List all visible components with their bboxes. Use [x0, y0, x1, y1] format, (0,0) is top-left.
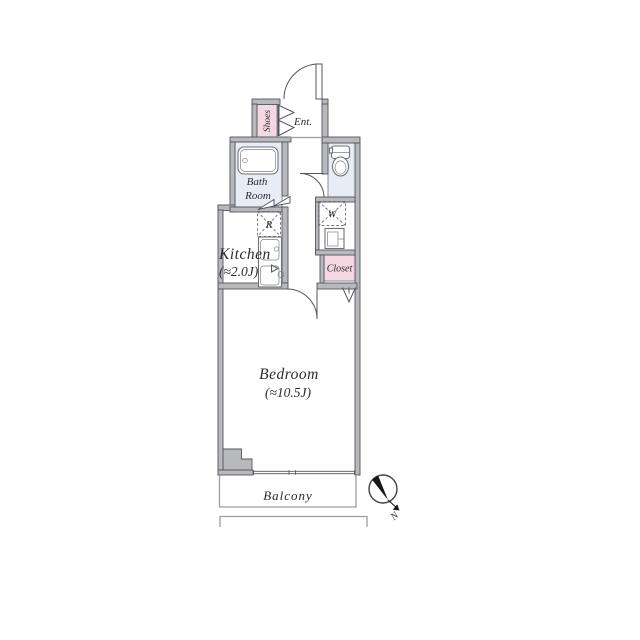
shoes-bifold-door	[278, 105, 294, 136]
shoes-door-panel-top	[279, 106, 294, 120]
toilet-door	[300, 174, 324, 198]
bathtub	[238, 147, 278, 174]
refrigerator-space: R	[258, 212, 281, 237]
wall-bath-left	[230, 142, 235, 212]
shoes-door-panel-bottom	[279, 121, 294, 136]
balcony-label: Balcony	[263, 488, 313, 503]
floorplan-drawing: R W	[0, 0, 640, 640]
wall-bedroom-top-right	[317, 283, 357, 289]
bathroom-label-line2: Room	[244, 190, 271, 202]
wall-east	[355, 143, 360, 475]
wall-closet-left	[320, 255, 324, 283]
water-heater	[325, 229, 344, 249]
balcony-window	[253, 470, 355, 474]
kitchen-label: Kitchen	[218, 246, 271, 263]
wall-bath-right-upper	[282, 142, 288, 196]
bedroom-door-arc	[287, 289, 317, 319]
shoes-label: Shoes	[263, 110, 273, 132]
toilet-door-arc	[300, 174, 324, 198]
washer-label: W	[328, 210, 338, 221]
kitchen-size-label: (≈2.0J)	[219, 264, 259, 279]
closet-label: Closet	[327, 264, 353, 275]
wall-kitchen-hall	[282, 207, 288, 283]
wall-toilet-left	[322, 143, 328, 174]
entrance-door-arc	[284, 64, 319, 99]
entrance-door-leaf	[316, 64, 322, 99]
bathtub-outer	[238, 147, 278, 174]
water-heater-outer	[325, 229, 344, 249]
wall-bedroom-bottom	[218, 470, 253, 475]
wall-toilet-top	[322, 137, 360, 143]
washer-space: W	[319, 202, 346, 226]
bedroom-door	[287, 289, 317, 319]
floorplan-page: R W	[0, 0, 640, 640]
bedroom-size-label: (≈10.5J)	[265, 385, 312, 400]
bedroom-label: Bedroom	[259, 366, 319, 383]
wall-closet-top	[316, 250, 356, 255]
entrance-label: Ent.	[293, 116, 312, 128]
bathroom-label-line1: Bath	[247, 176, 268, 188]
wall-shoes-left	[252, 104, 257, 137]
refrigerator-label: R	[265, 220, 272, 231]
pillar	[223, 449, 252, 470]
lower-slab-line	[220, 517, 367, 528]
compass-north-label: N	[388, 509, 402, 523]
wall-bath-top	[230, 137, 291, 142]
compass: N	[369, 475, 402, 523]
closet-door-mark	[343, 288, 356, 303]
toilet-flush-handle	[330, 148, 333, 153]
